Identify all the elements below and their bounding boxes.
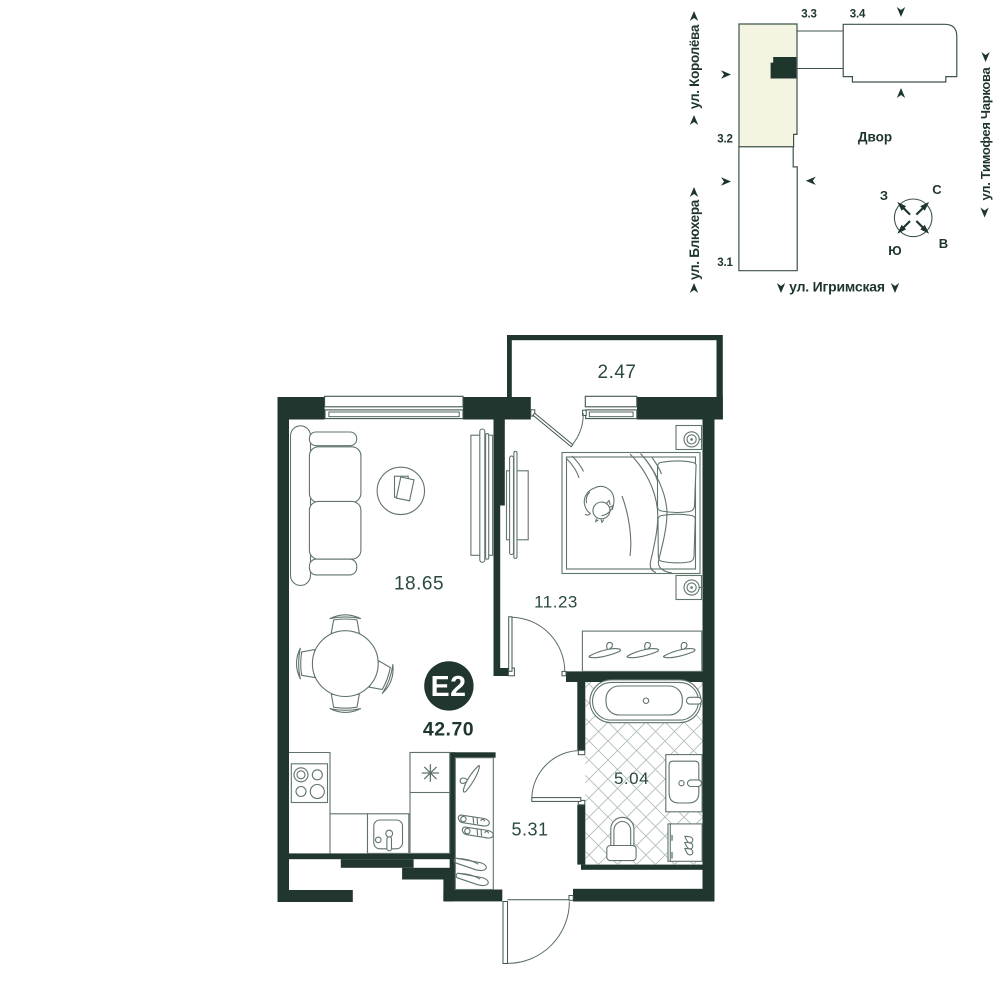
- svg-text:В: В: [939, 236, 948, 251]
- svg-text:3.3: 3.3: [801, 9, 816, 21]
- svg-text:18.65: 18.65: [394, 574, 444, 595]
- svg-text:ул. Блюхера: ул. Блюхера: [687, 199, 702, 280]
- svg-text:5.04: 5.04: [614, 769, 649, 788]
- svg-text:5.31: 5.31: [511, 820, 548, 840]
- svg-text:С: С: [932, 182, 942, 197]
- svg-text:42.70: 42.70: [423, 719, 474, 741]
- svg-text:ул. Игримская: ул. Игримская: [789, 279, 885, 295]
- svg-text:З: З: [880, 188, 888, 203]
- svg-text:3.2: 3.2: [717, 134, 732, 146]
- svg-text:3.1: 3.1: [717, 257, 733, 269]
- svg-text:E2: E2: [431, 671, 467, 703]
- svg-text:3.4: 3.4: [850, 9, 866, 21]
- svg-text:11.23: 11.23: [534, 593, 578, 612]
- svg-text:Двор: Двор: [858, 130, 892, 145]
- svg-text:ул. Тимофея Чаркова: ул. Тимофея Чаркова: [978, 66, 993, 200]
- svg-text:2.47: 2.47: [598, 362, 637, 383]
- svg-text:Ю: Ю: [888, 243, 901, 258]
- svg-text:ул. Королёва: ул. Королёва: [687, 24, 702, 109]
